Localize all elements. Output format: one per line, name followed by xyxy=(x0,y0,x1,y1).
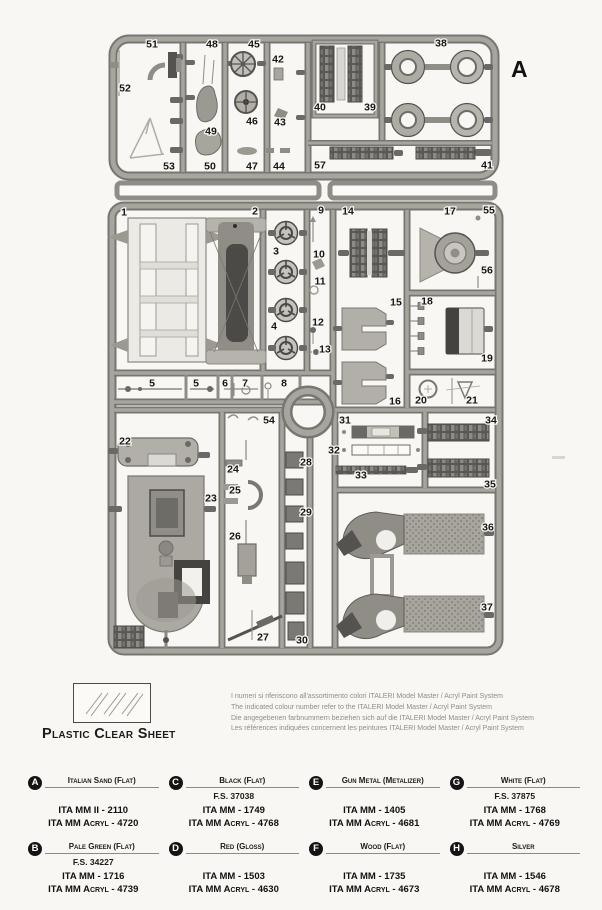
part-number-10: 10 xyxy=(313,249,325,261)
pins-18 xyxy=(410,303,424,355)
paint-codes: ITA MM - 1735ITA MM Acryl - 4673 xyxy=(309,871,440,896)
paint-codes: ITA MM - 1503ITA MM Acryl - 4630 xyxy=(169,871,300,896)
federal-standard-code xyxy=(28,791,159,802)
part-number-19: 19 xyxy=(481,353,493,365)
color-legend-entry-C: CBlack (Flat)F.S. 37038ITA MM - 1749ITA … xyxy=(169,770,300,836)
part-number-54: 54 xyxy=(263,415,275,427)
fenders-36-37 xyxy=(336,512,494,639)
part-number-31: 31 xyxy=(339,415,351,427)
paint-note-line: Les références indiquées concernent les … xyxy=(231,724,571,735)
part-number-40: 40 xyxy=(314,102,326,114)
part-number-51: 51 xyxy=(146,39,158,51)
sprue-diagram-a: A 51525348495045464742434440393857411234… xyxy=(0,0,602,672)
part-number-35: 35 xyxy=(484,479,496,491)
color-key-badge: A xyxy=(28,776,42,790)
color-key-badge: C xyxy=(169,776,183,790)
paint-note-line: The indicated colour number refer to the… xyxy=(231,703,571,714)
paint-codes: ITA MM - 1405ITA MM Acryl - 4681 xyxy=(309,805,440,830)
clear-sheet-swatch xyxy=(73,683,151,723)
color-name: Red (Gloss) xyxy=(186,842,300,854)
part-number-17: 17 xyxy=(444,206,456,218)
part-number-5: 5 xyxy=(149,378,155,390)
part-number-2: 2 xyxy=(252,206,258,218)
part-number-36: 36 xyxy=(482,522,494,534)
color-name: Silver xyxy=(467,842,581,854)
instruction-sheet-page: A 51525348495045464742434440393857411234… xyxy=(0,0,602,910)
part-number-28: 28 xyxy=(300,457,312,469)
federal-standard-code: F.S. 34227 xyxy=(28,857,159,868)
federal-standard-code xyxy=(309,857,440,868)
part-number-8: 8 xyxy=(281,378,287,390)
paint-system-notes: I numeri si riferiscono all'assortimento… xyxy=(231,692,571,735)
paint-codes: ITA MM - 1546ITA MM Acryl - 4678 xyxy=(450,871,581,896)
part-number-55: 55 xyxy=(483,205,495,217)
color-name: Italian Sand (Flat) xyxy=(45,776,159,788)
part-number-14: 14 xyxy=(342,206,354,218)
part-number-4: 4 xyxy=(271,321,277,333)
federal-standard-code: F.S. 37038 xyxy=(169,791,300,802)
part-number-23: 23 xyxy=(205,493,217,505)
color-key-badge: E xyxy=(309,776,323,790)
part-number-49: 49 xyxy=(205,126,217,138)
part-number-16: 16 xyxy=(389,396,401,408)
color-name: Gun Metal (Metalizer) xyxy=(326,776,440,788)
part-number-12: 12 xyxy=(312,317,324,329)
part-number-18: 18 xyxy=(421,296,433,308)
federal-standard-code xyxy=(450,857,581,868)
paint-codes: ITA MM II - 2110ITA MM Acryl - 4720 xyxy=(28,805,159,830)
part-number-48: 48 xyxy=(206,39,218,51)
scan-mark xyxy=(552,456,565,459)
color-name: Black (Flat) xyxy=(186,776,300,788)
paint-note-line: Die angegebenen farbnummern beziehen sic… xyxy=(231,714,571,725)
clear-sheet-label: Plastic Clear Sheet xyxy=(42,726,222,742)
clear-sheet-hatch-icon xyxy=(74,684,150,722)
part-number-43: 43 xyxy=(274,117,286,129)
part-number-3: 3 xyxy=(273,246,279,258)
part-number-39: 39 xyxy=(364,102,376,114)
color-legend-entry-F: FWood (Flat)ITA MM - 1735ITA MM Acryl - … xyxy=(309,836,440,896)
color-legend-entry-B: BPale Green (Flat)F.S. 34227ITA MM - 171… xyxy=(28,836,159,896)
part-number-56: 56 xyxy=(481,265,493,277)
federal-standard-code: F.S. 37875 xyxy=(450,791,581,802)
part-number-9: 9 xyxy=(318,205,324,217)
color-name: Pale Green (Flat) xyxy=(45,842,159,854)
color-key-badge: B xyxy=(28,842,42,856)
paint-codes: ITA MM - 1749ITA MM Acryl - 4768 xyxy=(169,805,300,830)
part-number-27: 27 xyxy=(257,632,269,644)
part-number-41: 41 xyxy=(481,160,493,172)
color-legend-entry-D: DRed (Gloss)ITA MM - 1503ITA MM Acryl - … xyxy=(169,836,300,896)
color-legend-entry-G: GWhite (Flat)F.S. 37875ITA MM - 1768ITA … xyxy=(450,770,581,836)
part-number-29: 29 xyxy=(300,507,312,519)
part-number-42: 42 xyxy=(272,54,284,66)
color-key-badge: H xyxy=(450,842,464,856)
part-number-38: 38 xyxy=(435,38,447,50)
sprue-letter: A xyxy=(511,56,528,82)
color-legend: AItalian Sand (Flat)ITA MM II - 2110ITA … xyxy=(28,770,580,896)
color-key-badge: D xyxy=(169,842,183,856)
part-number-33: 33 xyxy=(355,470,367,482)
color-key-badge: G xyxy=(450,776,464,790)
part-number-21: 21 xyxy=(466,395,478,407)
part-number-15: 15 xyxy=(390,297,402,309)
part-number-30: 30 xyxy=(296,635,308,647)
sprue-connector-bars xyxy=(117,183,495,198)
color-legend-entry-H: HSilverITA MM - 1546ITA MM Acryl - 4678 xyxy=(450,836,581,896)
part-number-37: 37 xyxy=(481,602,493,614)
part-number-25: 25 xyxy=(229,485,241,497)
part-number-57: 57 xyxy=(314,160,326,172)
color-legend-entry-A: AItalian Sand (Flat)ITA MM II - 2110ITA … xyxy=(28,770,159,836)
part-number-52: 52 xyxy=(119,83,131,95)
part-number-20: 20 xyxy=(415,395,427,407)
part-number-46: 46 xyxy=(246,116,258,128)
part-number-5: 5 xyxy=(193,378,199,390)
part-number-11: 11 xyxy=(314,276,325,288)
part-number-45: 45 xyxy=(248,39,260,51)
color-name: Wood (Flat) xyxy=(326,842,440,854)
part-number-32: 32 xyxy=(328,445,340,457)
tires-38 xyxy=(392,51,484,137)
part-number-24: 24 xyxy=(227,464,239,476)
part-number-47: 47 xyxy=(246,161,258,173)
federal-standard-code xyxy=(309,791,440,802)
paint-codes: ITA MM - 1716ITA MM Acryl - 4739 xyxy=(28,871,159,896)
color-legend-entry-E: EGun Metal (Metalizer)ITA MM - 1405ITA M… xyxy=(309,770,440,836)
paint-codes: ITA MM - 1768ITA MM Acryl - 4769 xyxy=(450,805,581,830)
part-number-13: 13 xyxy=(319,344,331,356)
color-key-badge: F xyxy=(309,842,323,856)
federal-standard-code xyxy=(169,857,300,868)
part-number-26: 26 xyxy=(229,531,241,543)
part-number-6: 6 xyxy=(222,378,228,390)
part-number-53: 53 xyxy=(163,161,175,173)
part-number-7: 7 xyxy=(242,378,248,390)
road-wheels-3-4 xyxy=(268,222,307,360)
blocks-28-30 xyxy=(286,452,304,640)
part-number-1: 1 xyxy=(121,207,127,219)
part-number-34: 34 xyxy=(485,415,497,427)
color-name: White (Flat) xyxy=(467,776,581,788)
part-number-44: 44 xyxy=(273,161,285,173)
part-number-22: 22 xyxy=(119,436,131,448)
paint-note-line: I numeri si riferiscono all'assortimento… xyxy=(231,692,571,703)
part-number-50: 50 xyxy=(204,161,216,173)
